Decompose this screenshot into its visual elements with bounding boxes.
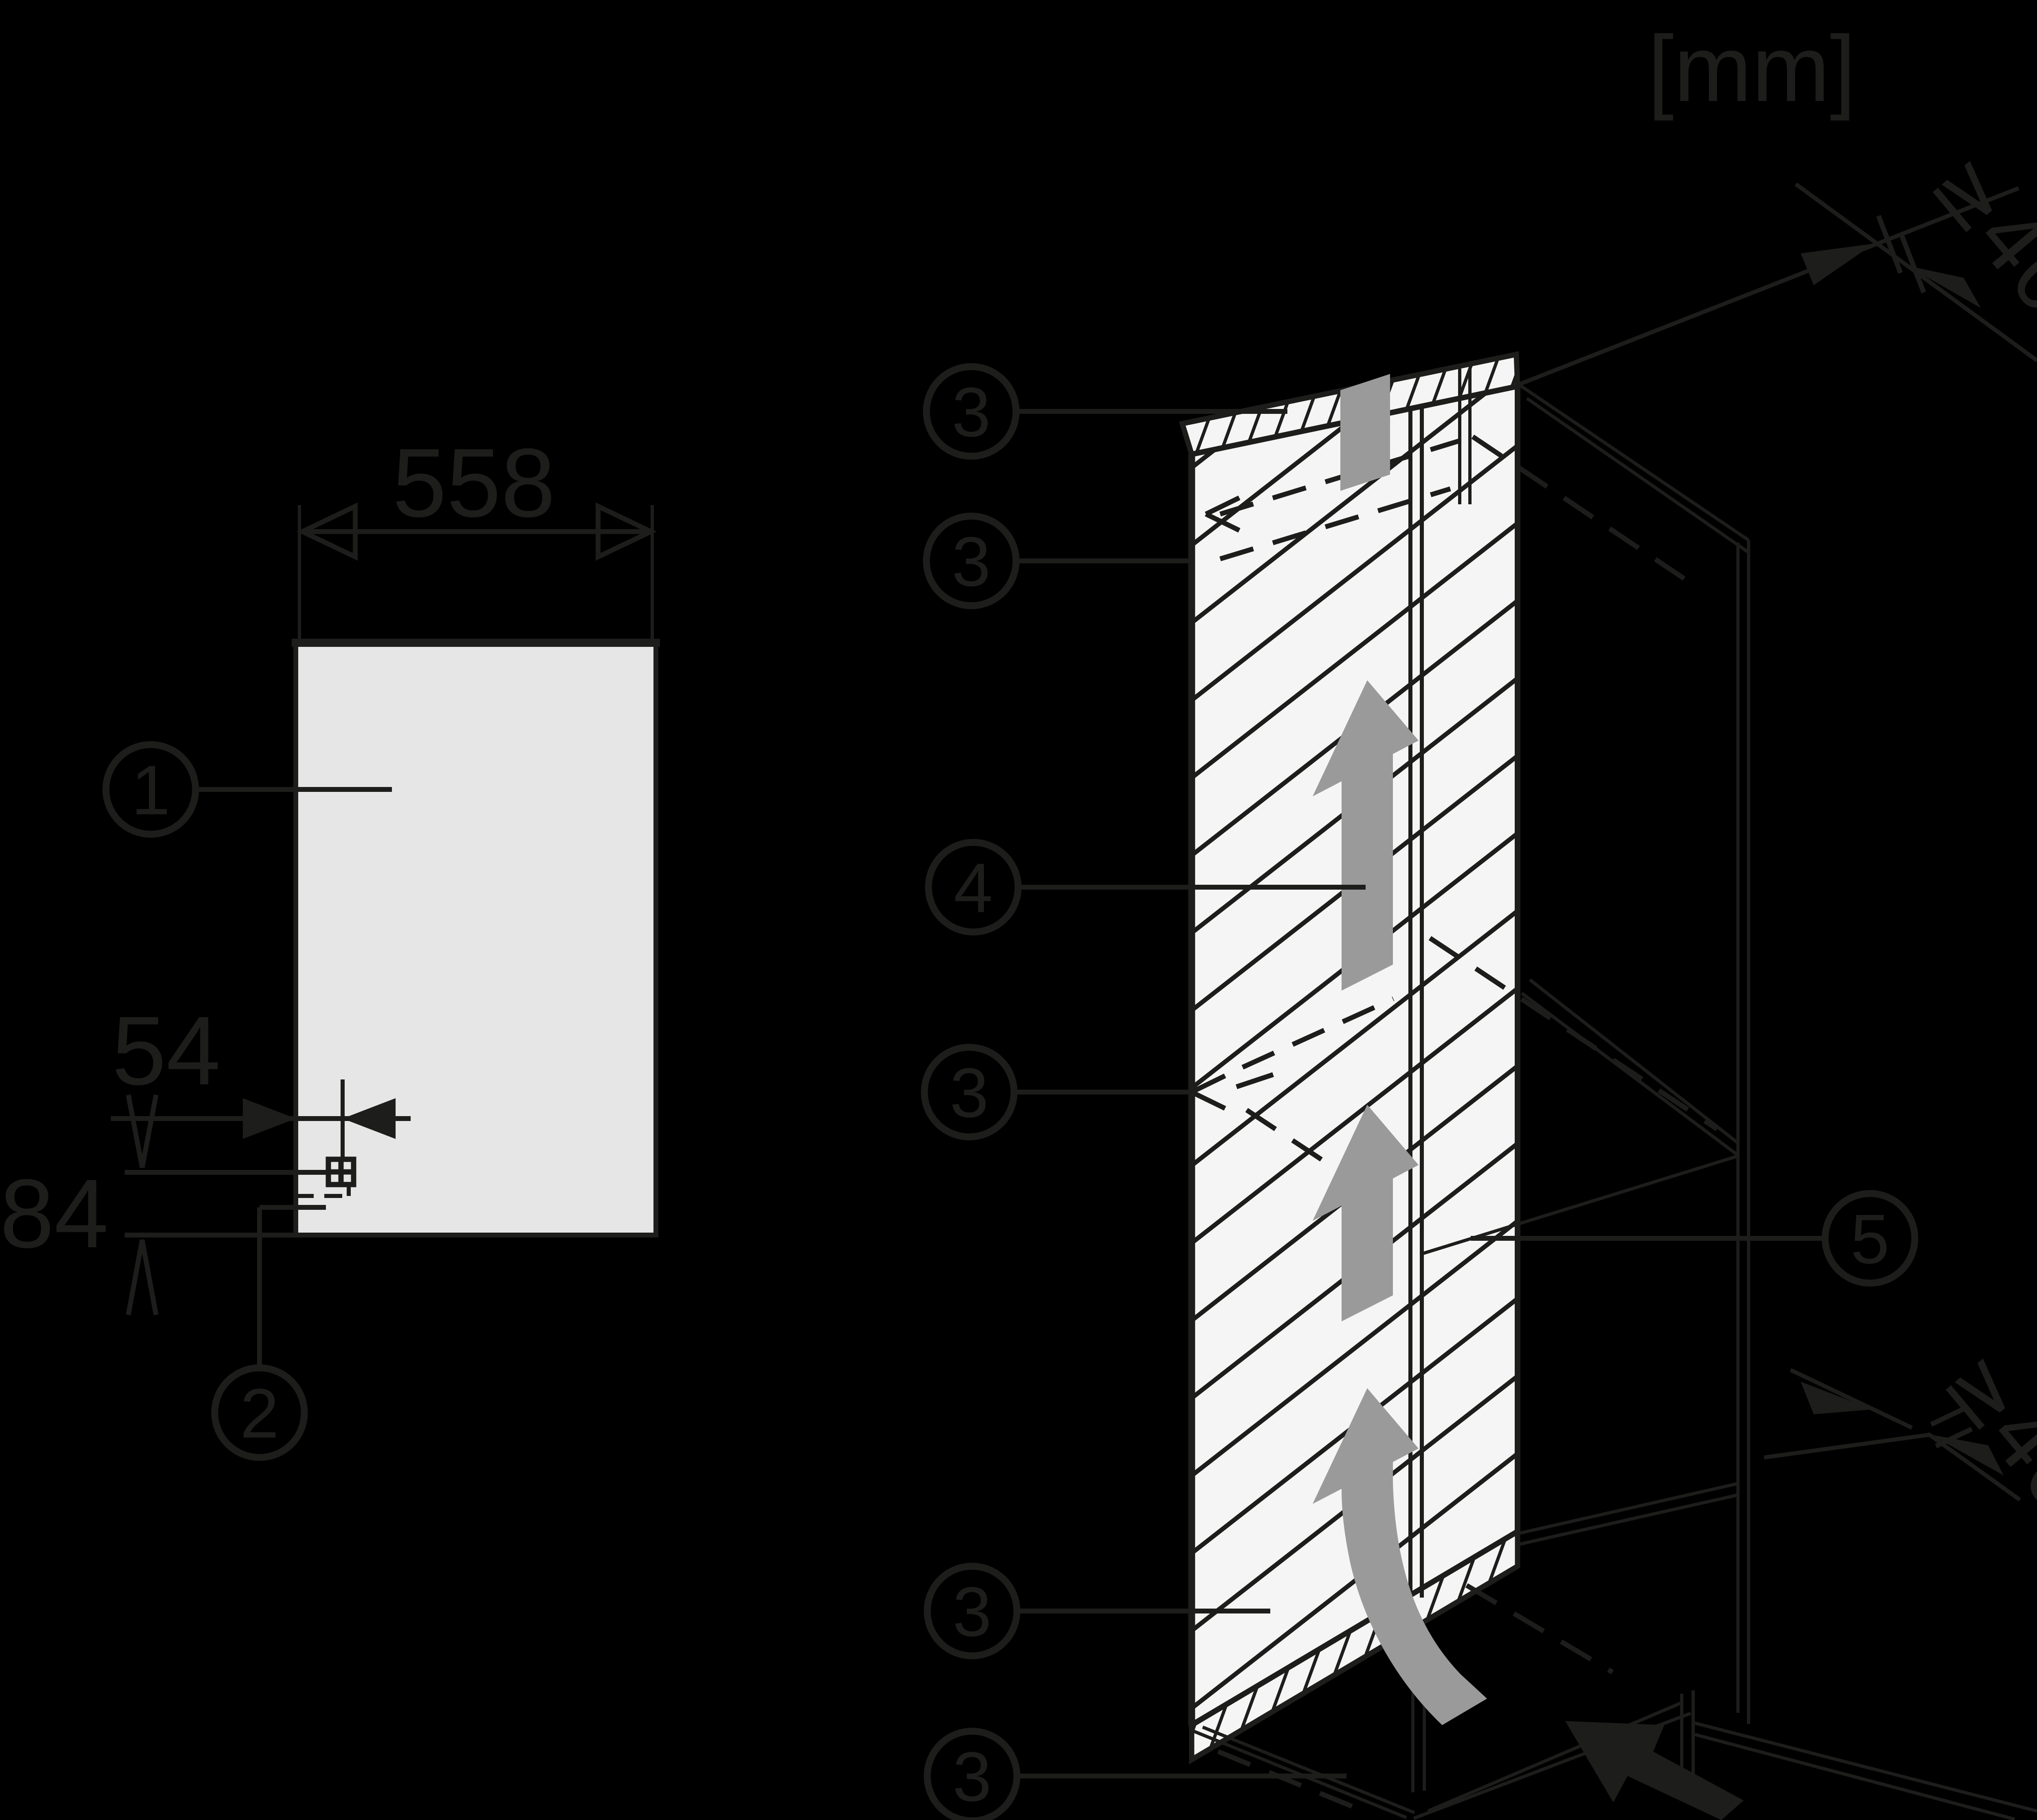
installation-diagram: 558 1 54 84 xyxy=(0,0,2037,1820)
callout-1-label: 1 xyxy=(131,751,170,829)
svg-text:3: 3 xyxy=(953,1573,992,1651)
svg-text:4: 4 xyxy=(954,849,993,927)
niche-rect xyxy=(296,643,656,1235)
socket-offset-x-label: 54 xyxy=(112,996,221,1105)
airflow-arrow-top-icon xyxy=(1340,374,1390,491)
callout-2-label: 2 xyxy=(240,1374,279,1453)
svg-text:5: 5 xyxy=(1850,1200,1890,1278)
svg-text:3: 3 xyxy=(952,523,991,601)
units-label: [mm] xyxy=(1648,16,1856,121)
svg-text:3: 3 xyxy=(950,1054,989,1132)
niche-width-label: 558 xyxy=(392,428,555,537)
mains-bracket-icon xyxy=(328,1159,354,1185)
svg-text:3: 3 xyxy=(953,1738,992,1816)
svg-text:3: 3 xyxy=(952,373,991,451)
socket-offset-y-label: 84 xyxy=(0,1159,108,1268)
